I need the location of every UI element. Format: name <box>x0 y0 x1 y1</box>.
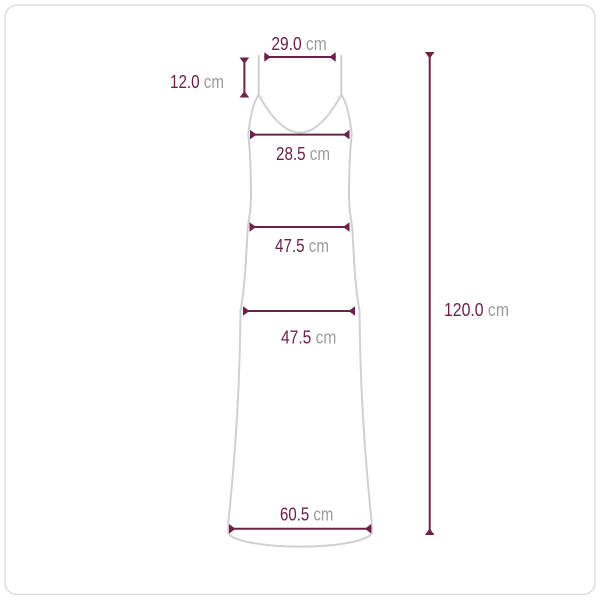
svg-text:12.0 cm: 12.0 cm <box>170 72 224 92</box>
svg-text:47.5 cm: 47.5 cm <box>281 328 336 348</box>
svg-text:29.0 cm: 29.0 cm <box>271 34 326 54</box>
svg-text:28.5 cm: 28.5 cm <box>276 144 330 164</box>
svg-text:60.5 cm: 60.5 cm <box>280 505 333 525</box>
svg-text:47.5 cm: 47.5 cm <box>275 236 329 256</box>
svg-text:120.0 cm: 120.0 cm <box>444 300 509 320</box>
